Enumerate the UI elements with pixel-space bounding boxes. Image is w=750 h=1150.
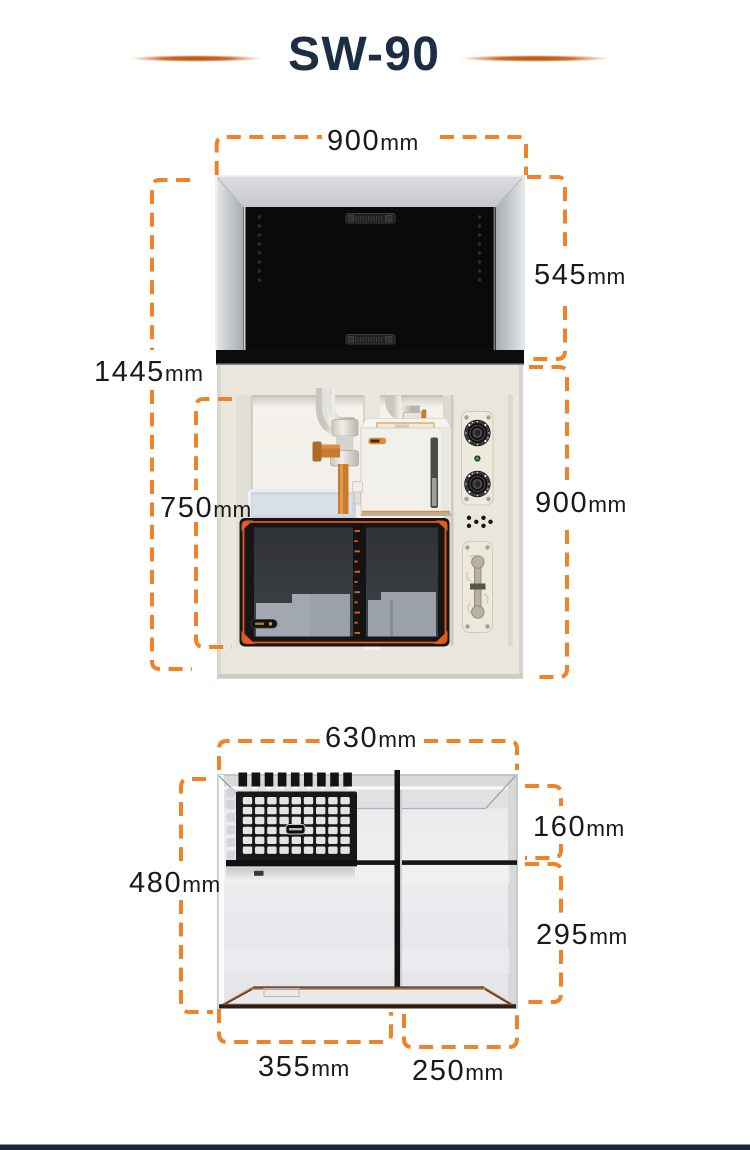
svg-text:545mm: 545mm: [534, 259, 626, 291]
svg-text:900mm: 900mm: [535, 487, 627, 519]
svg-text:630mm: 630mm: [325, 722, 417, 754]
svg-text:750mm: 750mm: [160, 492, 252, 524]
svg-text:295mm: 295mm: [536, 919, 628, 951]
svg-text:160mm: 160mm: [533, 811, 625, 843]
svg-text:480mm: 480mm: [129, 867, 221, 899]
svg-text:1445mm: 1445mm: [94, 356, 204, 388]
svg-text:SW-90: SW-90: [288, 28, 440, 81]
svg-text:250mm: 250mm: [412, 1055, 504, 1087]
svg-text:355mm: 355mm: [258, 1051, 350, 1083]
svg-text:900mm: 900mm: [327, 125, 419, 157]
